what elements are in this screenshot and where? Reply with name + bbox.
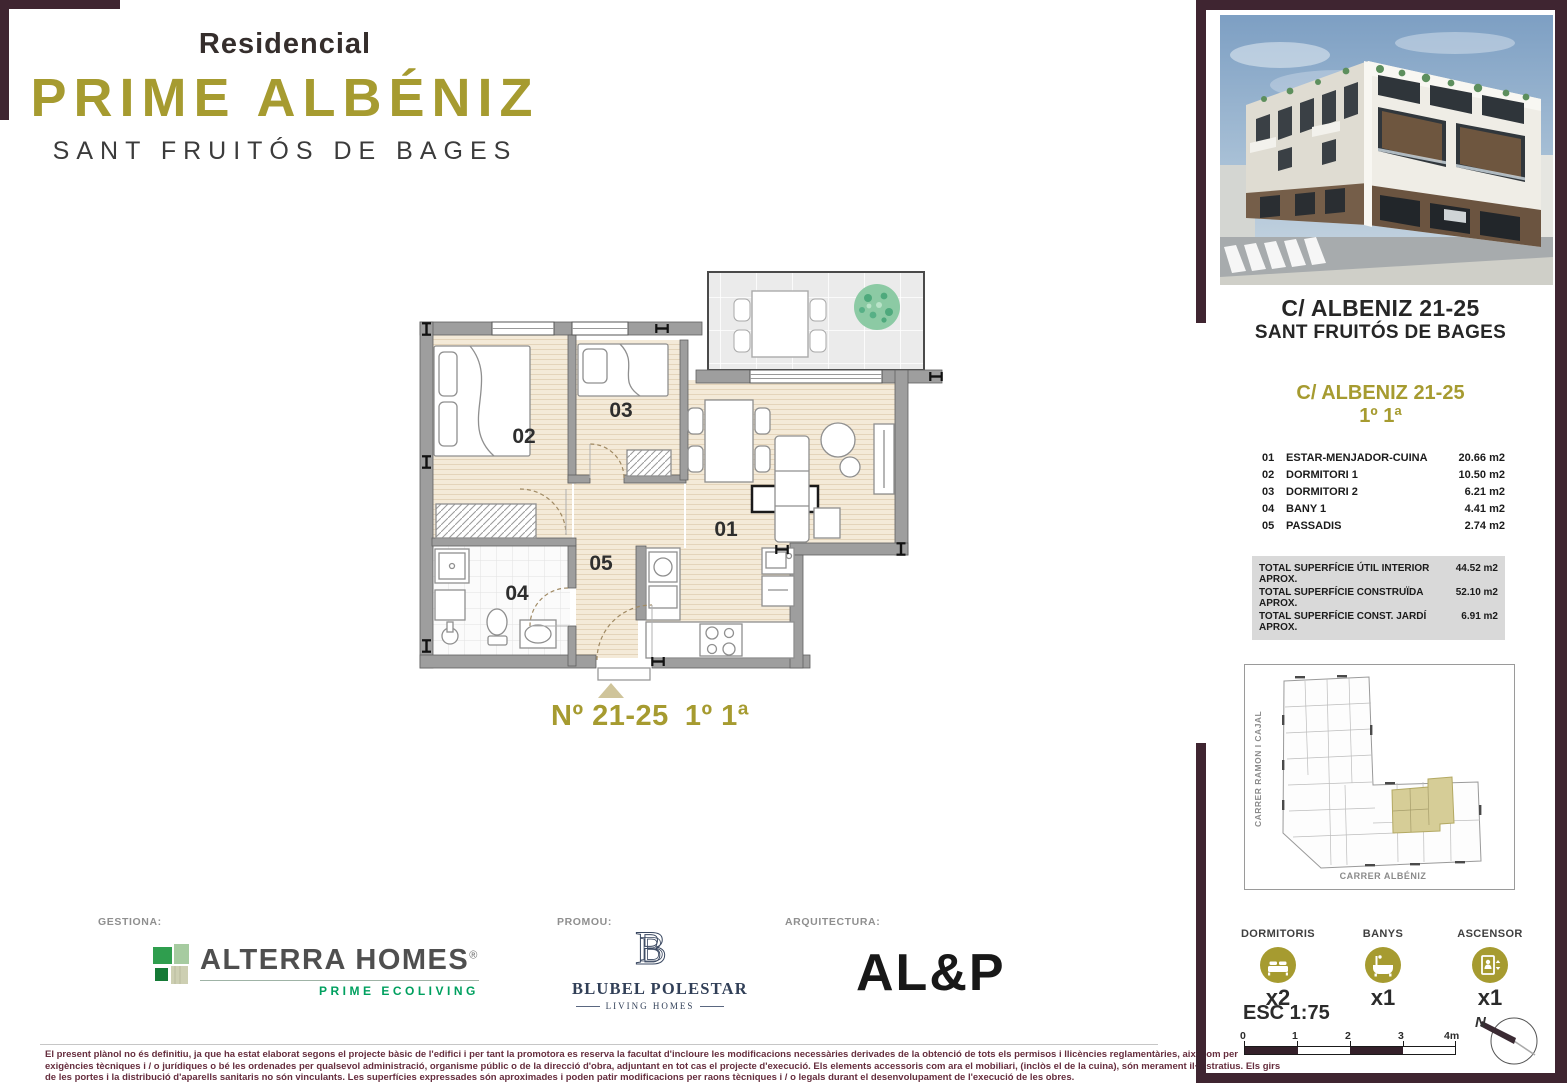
feature-banys-label: BANYS [1335,928,1431,940]
sidebar-frame-left-upper [1196,0,1206,323]
terrace-tree [854,284,900,330]
legal-disclaimer: El present plànol no és definitiu, ja qu… [45,1049,1185,1083]
sidebar-frame-bottom [1196,1073,1567,1083]
sidebar-unit-title: C/ ALBENIZ 21-25 1º 1ª [1206,382,1555,428]
registered-mark: ® [469,949,479,961]
floorplan-sheet: Residencial PRIME ALBÉNIZ SANT FRUITÓS D… [0,0,1567,1083]
totals-box: TOTAL SUPERFÍCIE ÚTIL INTERIOR APROX.44.… [1252,556,1505,640]
bed-icon [1260,947,1296,983]
brand-prefix: Residencial [20,28,550,61]
address-line2: SANT FRUITÓS DE BAGES [1206,322,1555,344]
scale-tick-end: 4m [1444,1030,1459,1042]
alterra-homes-logo: ALTERRA HOMES® PRIME ECOLIVING [152,944,479,998]
entrance-marker-icon [598,683,624,698]
siteplan-box: CARRER RAMON I CAJAL CARRER ALBÉNIZ [1244,664,1515,890]
room-row: 04BANY 14.41 m2 [1262,503,1505,515]
plan-caption-number: Nº 21-25 [551,700,669,732]
alterra-name: ALTERRA HOMES® [200,944,479,977]
elevator-icon [1472,947,1508,983]
feature-banys-count: x1 [1335,985,1431,1011]
scale-bar [1244,1046,1456,1055]
alp-logo: AL&P [856,943,1006,1003]
total-row: TOTAL SUPERFÍCIE CONST. JARDÍ APROX.6.91… [1259,611,1498,633]
room-label-passadis: 05 [589,552,613,575]
street-label-left: CARRER RAMON I CAJAL [1253,711,1263,827]
north-label: N [1475,1014,1487,1031]
alterra-logo-mark-icon [152,944,192,984]
sidebar-frame-top [1196,0,1567,10]
sidebar-address: C/ ALBENIZ 21-25 SANT FRUITÓS DE BAGES [1206,295,1555,344]
footer-divider [40,1044,1158,1045]
brand-location: SANT FRUITÓS DE BAGES [20,137,550,166]
blubel-monogram-icon: B B [627,922,673,972]
feature-dormitoris-label: DORMITORIS [1230,928,1326,940]
siteplan-drawing: CARRER RAMON I CAJAL CARRER ALBÉNIZ [1245,665,1514,889]
feature-banys: BANYS x1 [1335,928,1431,1011]
total-row: TOTAL SUPERFÍCIE CONSTRUÏDA APROX.52.10 … [1259,587,1498,609]
room-row: 01ESTAR-MENJADOR-CUINA20.66 m2 [1262,452,1505,464]
north-arrow-icon: N [1474,1008,1544,1070]
corner-mark-left [0,0,9,120]
address-line1: C/ ALBENIZ 21-25 [1206,295,1555,322]
floorplan-drawing: 02 03 01 04 05 [403,262,950,682]
total-row: TOTAL SUPERFÍCIE ÚTIL INTERIOR APROX.44.… [1259,563,1498,585]
blubel-polestar-logo: B B BLUBEL POLESTAR LIVING HOMES [572,922,728,1011]
blubel-name: BLUBEL POLESTAR [572,979,728,999]
brand-name: PRIME ALBÉNIZ [20,67,550,129]
blubel-tagline: LIVING HOMES [572,1001,728,1011]
room-list: 01ESTAR-MENJADOR-CUINA20.66 m2 02DORMITO… [1262,452,1505,537]
alterra-rule [200,980,479,981]
room-label-living: 01 [714,518,738,541]
corner-mark-top [0,0,120,9]
room-row: 03DORMITORI 26.21 m2 [1262,486,1505,498]
street-label-bottom: CARRER ALBÉNIZ [1340,871,1427,881]
svg-text:B: B [640,929,664,969]
sidebar-frame-right [1555,0,1567,1083]
sidebar-frame-left-lower [1196,743,1206,1083]
terrace [708,272,924,370]
unit-floor: 1º 1ª [1206,405,1555,428]
room-label-bany: 04 [505,582,529,605]
scale-label: ESC 1:75 [1243,1002,1330,1025]
brand-block: Residencial PRIME ALBÉNIZ SANT FRUITÓS D… [20,28,550,166]
plan-caption-floor: 1º 1ª [685,700,749,732]
room-row: 02DORMITORI 110.50 m2 [1262,469,1505,481]
feature-dormitoris: DORMITORIS x2 [1230,928,1326,1011]
feature-ascensor-label: ASCENSOR [1442,928,1538,940]
arquitectura-label: ARQUITECTURA: [785,916,880,928]
plan-caption: Nº 21-251º 1ª [480,700,820,733]
feature-ascensor: ASCENSOR x1 [1442,928,1538,1011]
room-row: 05PASSADIS2.74 m2 [1262,520,1505,532]
unit-title: C/ ALBENIZ 21-25 [1206,382,1555,405]
gestiona-label: GESTIONA: [98,916,162,928]
room-label-dormitori2: 03 [609,399,632,422]
room-label-dormitori1: 02 [512,425,535,448]
bathtub-icon [1365,947,1401,983]
building-photo [1220,15,1553,285]
alterra-tagline: PRIME ECOLIVING [200,984,479,998]
